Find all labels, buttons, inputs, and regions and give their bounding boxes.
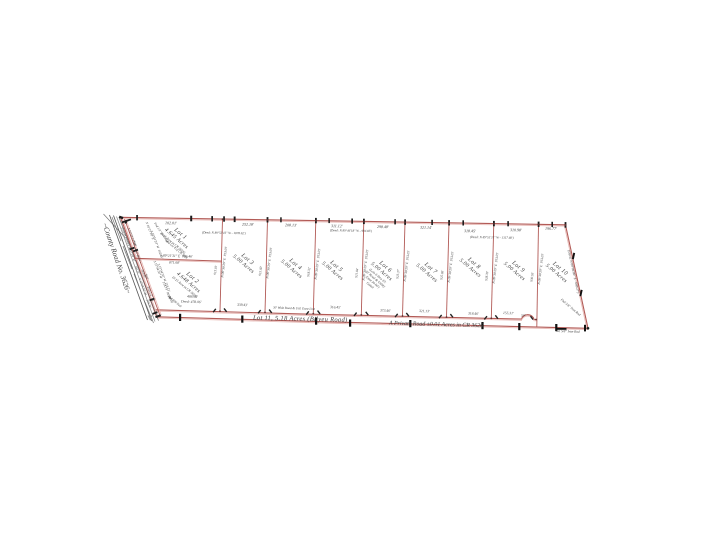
svg-text:50': 50' — [521, 314, 526, 318]
svg-text:102.01': 102.01' — [165, 220, 177, 225]
svg-text:871.08': 871.08' — [169, 261, 180, 265]
svg-text:318.45': 318.45' — [464, 228, 476, 233]
svg-text:Set 5/8" Iron Rod: Set 5/8" Iron Rod — [556, 329, 580, 334]
svg-text:913.01': 913.01' — [213, 264, 218, 274]
svg-text:208.13': 208.13' — [285, 222, 297, 227]
svg-text:915.60': 915.60' — [258, 265, 263, 275]
svg-text:Lot 11, 5.18 Acres (Bilyeu Roa: Lot 11, 5.18 Acres (Bilyeu Road) — [252, 315, 348, 324]
svg-text:373.46': 373.46' — [380, 309, 391, 313]
svg-text:310.98': 310.98' — [510, 227, 522, 232]
svg-text:Fnd 3/8" Iron Rod: Fnd 3/8" Iron Rod — [559, 297, 582, 317]
svg-text:928.39': 928.39' — [484, 270, 489, 280]
svg-text:918.32': 918.32' — [306, 266, 311, 276]
svg-text:921.04': 921.04' — [354, 267, 359, 277]
svg-text:30' Wide Road & Util. Esmt Lin: 30' Wide Road & Util. Esmt Line — [273, 306, 316, 311]
svg-text:A Private Road ±0.01 Acres in: A Private Road ±0.01 Acres in CR 3626 — [388, 321, 483, 330]
svg-text:923.37': 923.37' — [395, 268, 400, 278]
svg-text:925.85': 925.85' — [439, 269, 444, 279]
svg-text:316.45': 316.45' — [330, 305, 341, 309]
svg-text:321.13': 321.13' — [419, 309, 430, 313]
svg-text:Deed: 478.06': Deed: 478.06' — [180, 299, 202, 304]
svg-text:318.46': 318.46' — [468, 312, 479, 316]
svg-text:339.43': 339.43' — [237, 303, 248, 307]
svg-text:321.14': 321.14' — [420, 225, 432, 230]
svg-text:(Deed: N 89°46'18" W - 994.85': (Deed: N 89°46'18" W - 994.85') — [330, 228, 372, 233]
svg-text:155.31': 155.31' — [503, 311, 514, 315]
svg-text:930.95': 930.95' — [530, 271, 535, 281]
svg-text:(Deed: N 89°53'43" W - 1878.62: (Deed: N 89°53'43" W - 1878.62') — [202, 231, 246, 236]
svg-text:252.18': 252.18' — [242, 222, 254, 227]
svg-text:30.0': 30.0' — [144, 273, 150, 280]
svg-text:(Deed: N 89°51'31" W - 1317.68: (Deed: N 89°51'31" W - 1317.68') — [470, 235, 514, 240]
svg-text:298.48': 298.48' — [377, 224, 389, 229]
svg-text:488.00': 488.00' — [187, 295, 198, 299]
svg-text:196.77': 196.77' — [545, 226, 557, 231]
